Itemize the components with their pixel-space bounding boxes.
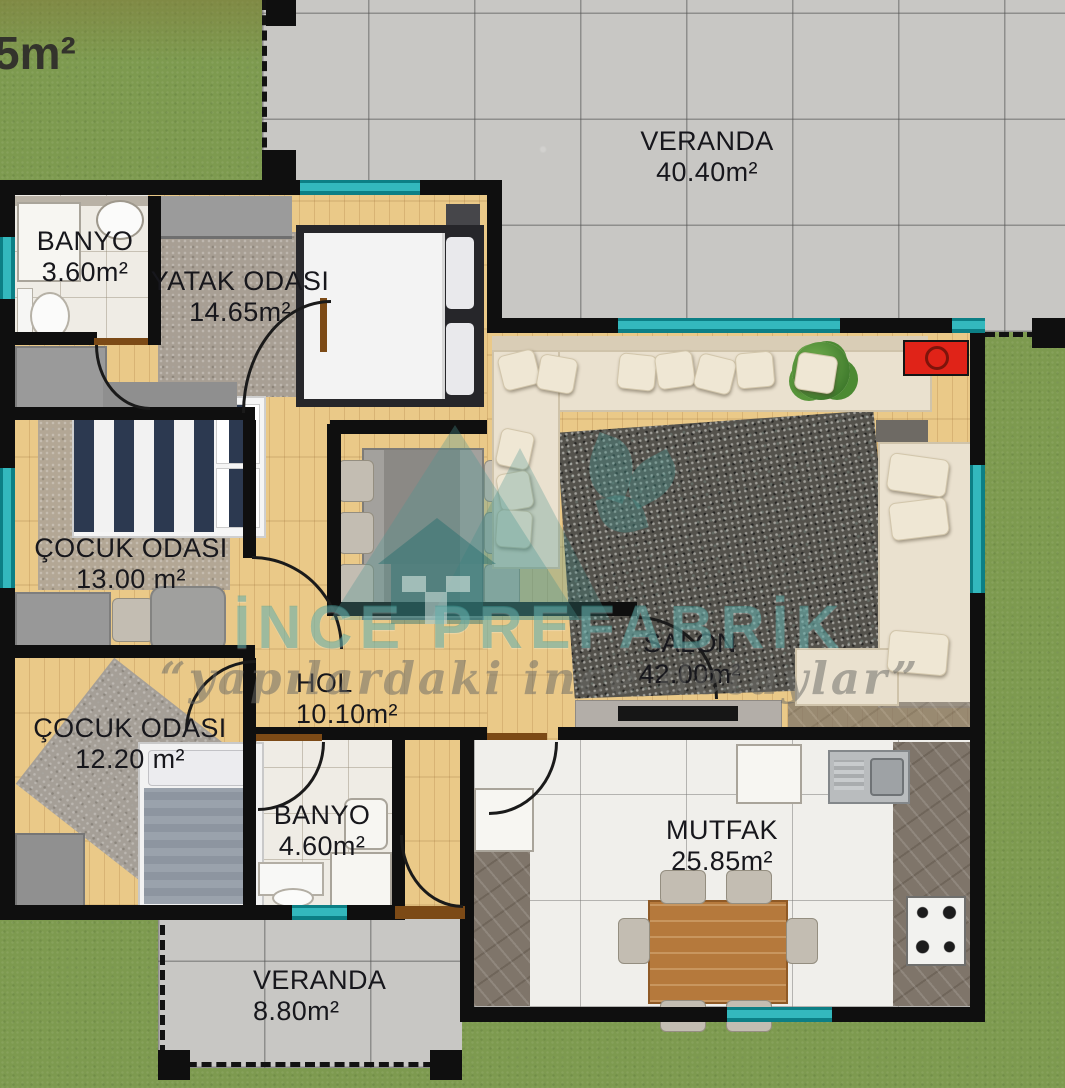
sofa-pillow — [654, 350, 697, 391]
room-area: 8.80m² — [253, 996, 386, 1027]
floor-plan: 5m² VERANDA 40.40m² VERANDA 8.80m² — [0, 0, 1065, 1088]
salon-label: SALON 42.00m² — [590, 628, 790, 690]
dining-table — [362, 448, 484, 620]
desk-chair — [112, 598, 154, 642]
dining-chair — [484, 564, 520, 606]
sofa-pillow — [886, 629, 949, 676]
wall — [405, 727, 487, 740]
room-name: BANYO — [15, 226, 155, 257]
room-name: ÇOCUK ODASI — [26, 533, 236, 564]
console-marble — [788, 702, 970, 730]
room-area: 40.40m² — [607, 157, 807, 188]
room-area: 12.20 m² — [25, 744, 235, 775]
sofa-pillow — [735, 350, 776, 389]
wall — [15, 332, 97, 345]
dresser — [15, 833, 85, 907]
veranda-top-corner-block-2 — [1032, 318, 1065, 348]
sofa-pillow — [535, 353, 579, 395]
room-area: 25.85m² — [622, 846, 822, 877]
cocuk-odasi-2-label: ÇOCUK ODASI 12.20 m² — [25, 713, 235, 775]
sink-drainer — [834, 760, 864, 790]
banyo-alt-label: BANYO 4.60m² — [252, 800, 392, 862]
window — [292, 905, 347, 920]
kitchen-chair — [618, 918, 650, 964]
sofa-pillow — [886, 452, 951, 498]
sofa-pillow — [888, 497, 950, 542]
veranda-bottom-corner-block-left — [158, 1050, 190, 1080]
wall — [330, 420, 487, 434]
room-name: VERANDA — [607, 126, 807, 157]
sofa-pillow — [616, 352, 658, 392]
sofa-pillow — [495, 509, 534, 549]
dining-chair — [338, 460, 374, 502]
window — [727, 1007, 832, 1022]
door-leaf — [94, 338, 148, 345]
room-name: MUTFAK — [622, 815, 822, 846]
kitchen-table — [648, 900, 788, 1004]
sofa-pillow — [495, 469, 535, 512]
room-name: VERANDA — [253, 965, 386, 996]
table-runner — [384, 450, 460, 614]
sofa-back — [492, 336, 928, 350]
grey-duvet — [144, 788, 254, 904]
mutfak-label: MUTFAK 25.85m² — [622, 815, 822, 877]
room-area: 10.10m² — [296, 699, 398, 730]
room-name: HOL — [296, 668, 398, 699]
veranda-bottom-dashed-edge-bottom — [172, 1062, 448, 1067]
kitchen-appliance — [736, 744, 802, 804]
corner-area-label: 5m² — [0, 26, 76, 80]
wall — [15, 407, 255, 420]
sofa-pillow — [793, 351, 838, 395]
veranda-top-corner-block — [262, 150, 296, 180]
heater-dial — [925, 346, 949, 370]
veranda-bottom-corner-block-right — [430, 1050, 462, 1080]
wall — [970, 318, 985, 1022]
dining-chair — [338, 512, 374, 554]
hol-label: HOL 10.10m² — [296, 668, 398, 730]
wall — [327, 424, 341, 616]
room-area: 42.00m² — [590, 659, 790, 690]
wall — [15, 645, 255, 658]
window — [970, 465, 985, 593]
veranda-bottom-dashed-edge-left — [160, 925, 165, 1055]
window — [952, 318, 985, 333]
wall — [6, 180, 502, 195]
wall — [558, 727, 971, 740]
tv — [618, 706, 738, 721]
room-name: ÇOCUK ODASI — [25, 713, 235, 744]
wall — [487, 180, 502, 333]
window — [618, 318, 840, 333]
dining-chair — [338, 564, 374, 606]
veranda-top-label: VERANDA 40.40m² — [607, 126, 807, 188]
window — [300, 180, 420, 195]
room-name: SALON — [590, 628, 790, 659]
yatak-odasi-label: YATAK ODASI 14.65m² — [130, 266, 350, 328]
window — [0, 468, 15, 588]
stove — [906, 896, 966, 966]
door-leaf — [256, 734, 322, 741]
entry-door-leaf — [395, 906, 465, 919]
side-table-dark — [876, 420, 928, 442]
wall — [392, 740, 405, 920]
bed-pillow — [446, 323, 474, 395]
armchair-salon — [795, 648, 899, 706]
heater-icon — [903, 340, 969, 376]
door-leaf — [487, 733, 547, 740]
armchair-grey — [150, 586, 226, 652]
sink-bowl — [870, 758, 904, 796]
kitchen-sink — [828, 750, 910, 804]
room-name: BANYO — [252, 800, 392, 831]
wall — [327, 602, 637, 616]
wall — [243, 420, 256, 558]
veranda-bottom-label: VERANDA 8.80m² — [253, 965, 386, 1027]
bed-pillow — [446, 237, 474, 309]
cocuk-odasi-1-label: ÇOCUK ODASI 13.00 m² — [26, 533, 236, 595]
room-area: 13.00 m² — [26, 564, 236, 595]
window — [0, 237, 15, 299]
room-area: 14.65m² — [130, 297, 350, 328]
kitchen-chair — [786, 918, 818, 964]
room-name: YATAK ODASI — [130, 266, 350, 297]
kitchen-counter-left — [474, 852, 530, 1006]
veranda-top-corner-block-3 — [266, 0, 296, 26]
wardrobe — [150, 196, 292, 239]
room-area: 4.60m² — [252, 831, 392, 862]
wall — [460, 1007, 985, 1022]
